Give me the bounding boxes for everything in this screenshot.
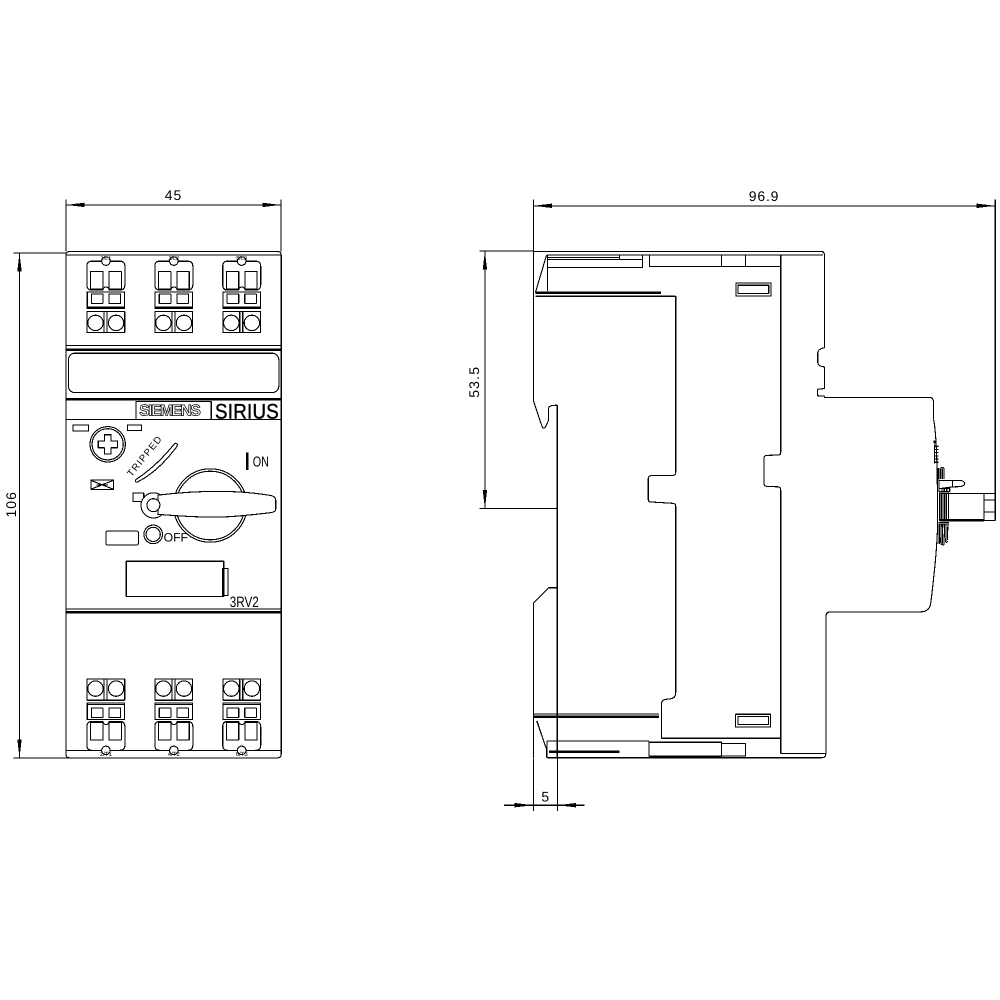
svg-text:SIEMENS: SIEMENS bbox=[139, 403, 200, 420]
svg-text:53.5: 53.5 bbox=[466, 366, 482, 398]
svg-text:OFF: OFF bbox=[164, 531, 188, 545]
svg-text:6/T3: 6/T3 bbox=[236, 751, 249, 758]
svg-text:5: 5 bbox=[541, 788, 549, 804]
svg-text:2/T1: 2/T1 bbox=[100, 751, 113, 758]
svg-text:1/L1: 1/L1 bbox=[100, 255, 111, 262]
svg-text:5/L3: 5/L3 bbox=[236, 255, 247, 262]
svg-text:96.9: 96.9 bbox=[749, 188, 779, 204]
svg-text:ON: ON bbox=[253, 455, 269, 471]
svg-text:3/L2: 3/L2 bbox=[168, 255, 179, 262]
svg-text:3RV2: 3RV2 bbox=[230, 594, 259, 611]
svg-text:4/T2: 4/T2 bbox=[168, 751, 181, 758]
svg-text:45: 45 bbox=[165, 187, 183, 203]
svg-text:106: 106 bbox=[3, 491, 19, 517]
